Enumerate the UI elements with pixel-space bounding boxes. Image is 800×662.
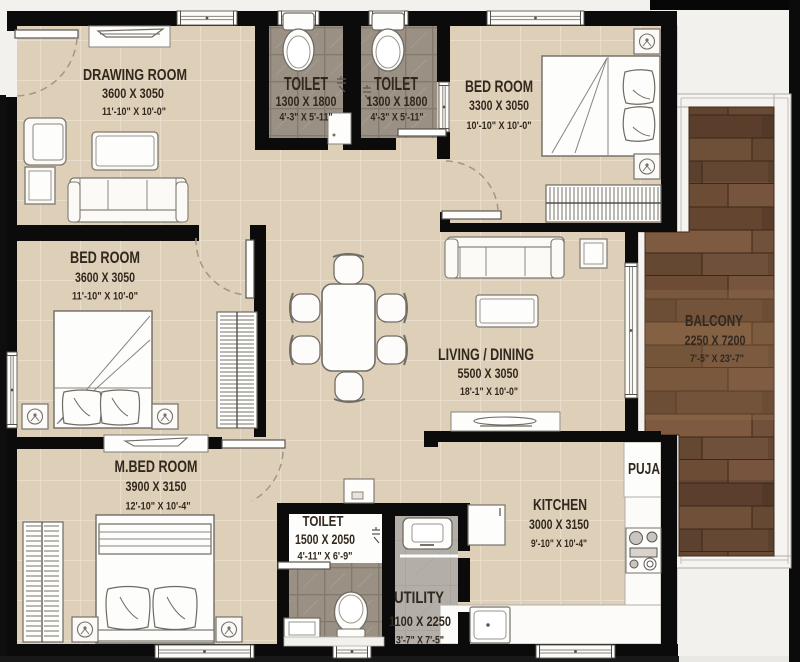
svg-text:3300 X 3050: 3300 X 3050 <box>469 98 529 113</box>
svg-text:3600 X 3050: 3600 X 3050 <box>75 270 135 285</box>
svg-text:4'-11" X 6'-9": 4'-11" X 6'-9" <box>298 551 353 563</box>
svg-text:12'-10" X 10'-4": 12'-10" X 10'-4" <box>126 501 191 513</box>
svg-text:DRAWING ROOM: DRAWING ROOM <box>83 67 187 84</box>
svg-text:3600 X 3050: 3600 X 3050 <box>102 86 164 101</box>
svg-text:1300 X 1800: 1300 X 1800 <box>276 94 337 109</box>
svg-text:KITCHEN: KITCHEN <box>533 497 587 514</box>
svg-text:11'-10" X 10'-0": 11'-10" X 10'-0" <box>72 291 138 303</box>
svg-text:BED ROOM: BED ROOM <box>465 77 533 96</box>
svg-text:9'-10" X 10'-4": 9'-10" X 10'-4" <box>531 538 587 550</box>
svg-text:7'-5" X 23'-7": 7'-5" X 23'-7" <box>690 353 744 365</box>
svg-text:UTILITY: UTILITY <box>394 588 445 607</box>
svg-text:4'-3" X 5'-11": 4'-3" X 5'-11" <box>280 112 333 124</box>
svg-text:LIVING / DINING: LIVING / DINING <box>438 345 534 364</box>
svg-text:1500 X 2050: 1500 X 2050 <box>295 532 355 547</box>
svg-text:PUJA: PUJA <box>628 461 660 478</box>
svg-text:TOILET: TOILET <box>284 74 328 94</box>
svg-text:18'-1" X 10'-0": 18'-1" X 10'-0" <box>460 386 518 398</box>
svg-text:TOILET: TOILET <box>374 74 418 94</box>
svg-text:BALCONY: BALCONY <box>685 313 743 330</box>
svg-text:10'-10" X 10'-0": 10'-10" X 10'-0" <box>467 120 532 132</box>
svg-text:3000 X 3150: 3000 X 3150 <box>529 517 589 532</box>
svg-text:M.BED ROOM: M.BED ROOM <box>115 457 198 476</box>
svg-text:1300 X 1800: 1300 X 1800 <box>367 94 428 109</box>
svg-text:1100 X 2250: 1100 X 2250 <box>389 614 451 629</box>
svg-text:3900 X 3150: 3900 X 3150 <box>126 479 187 494</box>
svg-text:11'-10" X 10'-0": 11'-10" X 10'-0" <box>102 106 166 118</box>
svg-text:5500 X 3050: 5500 X 3050 <box>458 366 519 381</box>
svg-text:TOILET: TOILET <box>303 513 344 530</box>
svg-text:2250 X 7200: 2250 X 7200 <box>685 332 746 348</box>
svg-text:4'-3" X 5'-11": 4'-3" X 5'-11" <box>371 112 424 124</box>
svg-text:BED ROOM: BED ROOM <box>70 248 140 267</box>
svg-text:3'-7" X 7'-5": 3'-7" X 7'-5" <box>396 635 444 647</box>
